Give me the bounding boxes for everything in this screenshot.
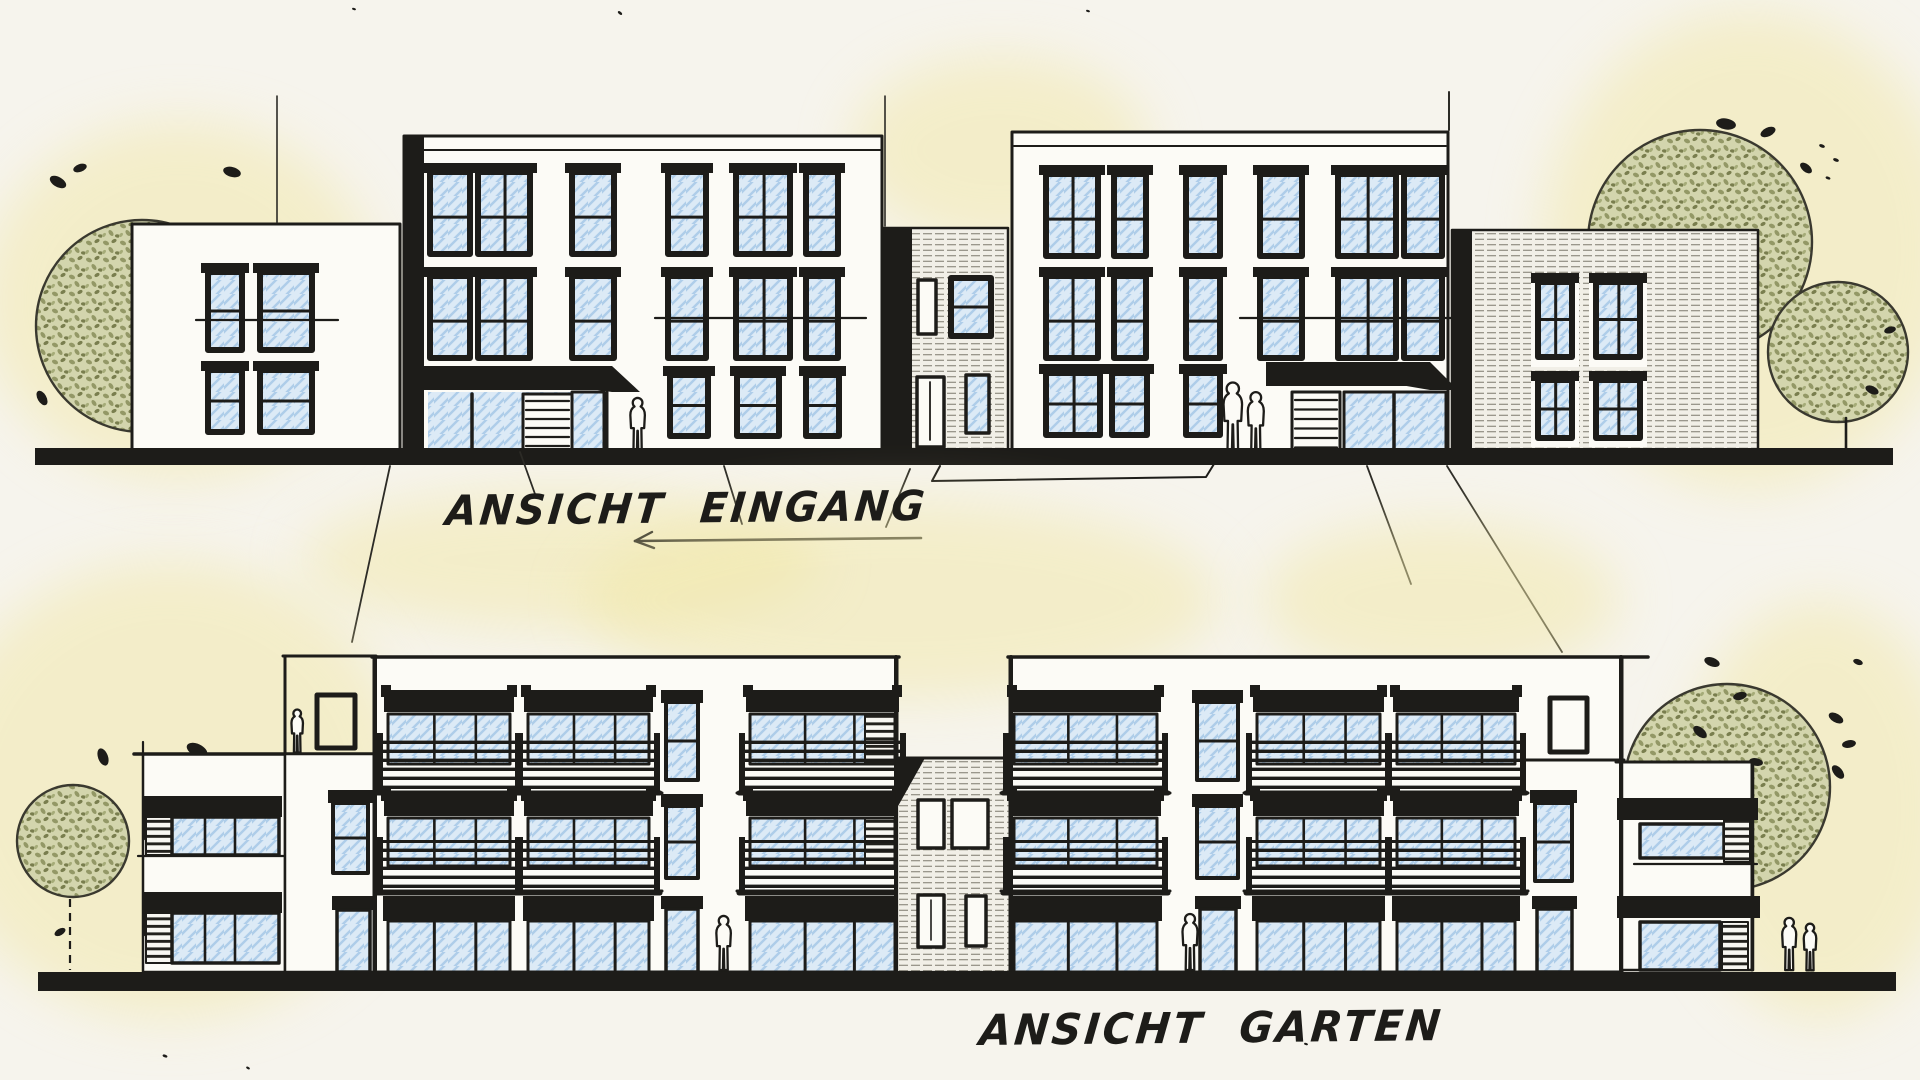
narrow-door xyxy=(1195,896,1241,972)
window xyxy=(423,267,477,358)
window xyxy=(1531,371,1579,438)
ground-glazing xyxy=(1392,896,1520,972)
balcony-bay xyxy=(375,685,523,793)
window xyxy=(1039,267,1105,358)
window xyxy=(1039,364,1107,435)
label-ansicht-eingang: ANSICHT EINGANG xyxy=(443,483,929,536)
window xyxy=(253,263,319,350)
window xyxy=(471,267,537,358)
building-bottom-wing-right xyxy=(1616,762,1760,970)
narrow-window xyxy=(328,790,373,873)
window xyxy=(1589,371,1647,438)
narrow-window xyxy=(1530,790,1577,881)
window xyxy=(799,163,845,254)
elevation-drawing-svg xyxy=(0,0,1920,1080)
ground-line xyxy=(38,972,1896,991)
window xyxy=(661,267,713,358)
balcony-bay xyxy=(1001,685,1170,793)
balcony-bay xyxy=(737,685,908,793)
building-top-link xyxy=(884,228,1008,454)
leaf-blob xyxy=(1086,9,1091,12)
balcony-bay xyxy=(1001,789,1170,893)
balcony-bay xyxy=(1244,789,1393,893)
window xyxy=(918,280,936,334)
label-ansicht-garten: ANSICHT GARTEN xyxy=(977,1001,1445,1056)
building-top-block-left xyxy=(404,136,882,454)
window xyxy=(1397,267,1449,358)
building-bottom-block-right xyxy=(1001,657,1648,972)
building-bottom-link xyxy=(897,758,1010,972)
ground-glazing xyxy=(1009,896,1162,972)
window xyxy=(799,366,846,436)
window xyxy=(1331,267,1403,358)
window xyxy=(918,800,944,848)
person-figure xyxy=(1804,924,1817,971)
narrow-door xyxy=(661,896,703,972)
window xyxy=(730,366,786,436)
window xyxy=(661,163,713,254)
balcony-bay xyxy=(1384,789,1528,893)
narrow-door xyxy=(1532,896,1577,972)
person-figure xyxy=(291,710,303,753)
window xyxy=(565,267,621,358)
ground-line xyxy=(35,448,1893,465)
building-top-house-left xyxy=(132,224,400,454)
balcony-bay xyxy=(1244,685,1393,793)
ground-glazing xyxy=(523,896,654,972)
window xyxy=(253,361,319,432)
window xyxy=(201,361,249,432)
window xyxy=(1531,273,1579,357)
ground-glazing xyxy=(745,896,900,972)
window xyxy=(1179,165,1227,256)
leaf-blob xyxy=(352,7,357,10)
loggia-unit xyxy=(143,892,282,963)
window xyxy=(423,163,477,254)
narrow-window xyxy=(661,690,703,780)
window xyxy=(1253,165,1309,256)
window xyxy=(952,800,988,848)
window xyxy=(729,267,797,358)
facade-timber xyxy=(897,758,1010,972)
balcony-bay xyxy=(375,789,523,893)
balcony-bay xyxy=(737,789,908,893)
window xyxy=(1331,165,1403,256)
window xyxy=(565,163,621,254)
window xyxy=(663,366,715,436)
loggia-unit xyxy=(143,796,282,855)
elevation-garden xyxy=(0,500,1920,1070)
leaf-blob xyxy=(246,1066,251,1070)
ground-glazing xyxy=(1252,896,1385,972)
sketch-sheet: ANSICHT EINGANG ANSICHT GARTEN xyxy=(0,0,1920,1080)
leaf-blob xyxy=(162,1054,168,1058)
window xyxy=(201,263,249,350)
window xyxy=(966,375,989,433)
window xyxy=(1253,267,1309,358)
facade-under-terrace-left xyxy=(285,754,376,972)
window xyxy=(966,896,986,946)
narrow-window xyxy=(1192,794,1243,878)
window xyxy=(1589,273,1647,357)
window xyxy=(1039,165,1105,256)
window xyxy=(1179,267,1227,358)
narrow-window xyxy=(661,794,703,878)
window xyxy=(1397,165,1449,256)
window xyxy=(1107,267,1153,358)
window xyxy=(951,278,991,336)
building-top-house-right xyxy=(1452,230,1758,454)
person-figure xyxy=(1782,918,1796,970)
window xyxy=(729,163,797,254)
balcony-bay xyxy=(515,789,662,893)
window xyxy=(1179,364,1227,435)
window xyxy=(471,163,537,254)
window xyxy=(1107,165,1153,256)
tree xyxy=(17,785,129,897)
narrow-window xyxy=(1192,690,1243,780)
ground-glazing xyxy=(383,896,515,972)
tree xyxy=(1768,282,1908,422)
balcony-bay xyxy=(515,685,662,793)
window xyxy=(799,267,845,358)
balcony-bay xyxy=(1384,685,1528,793)
window xyxy=(1105,364,1154,435)
leaf-blob xyxy=(617,10,623,15)
building-bottom-block-left xyxy=(283,656,908,972)
